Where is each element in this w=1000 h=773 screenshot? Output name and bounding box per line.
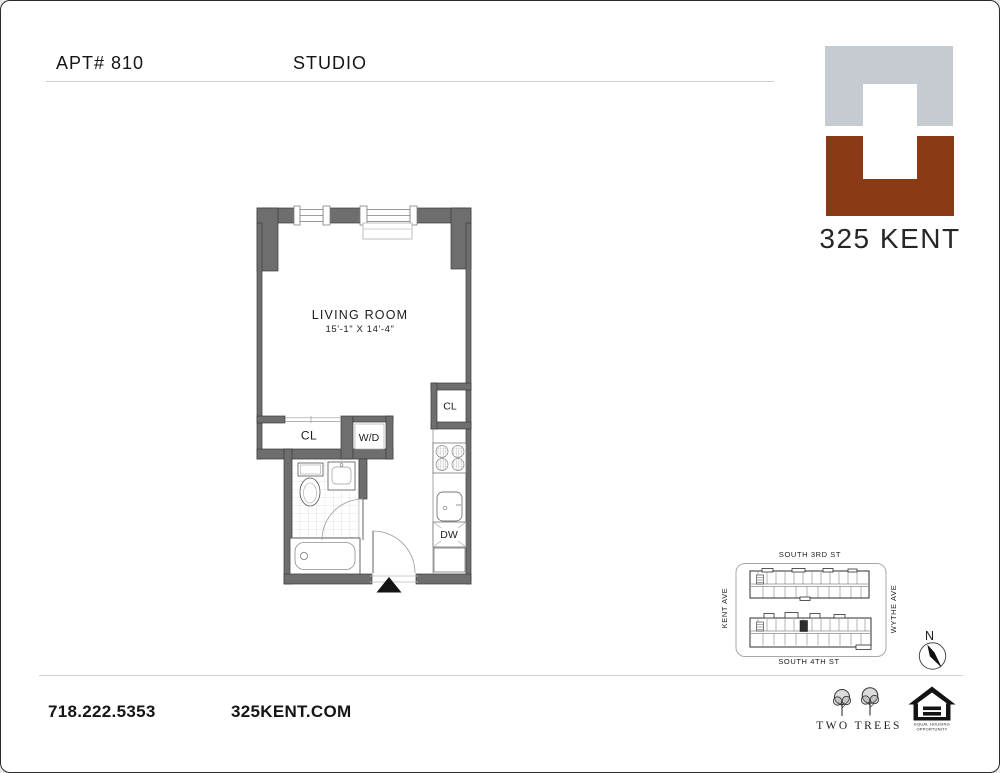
wall-segment xyxy=(341,416,353,459)
phone-number: 718.222.5353 xyxy=(48,702,156,722)
drawing-layer: LIVING ROOM 15'-1" X 14'-4" CL W/D CL DW xyxy=(1,1,1000,773)
kitchen-closet-label: CL xyxy=(443,401,457,413)
dishwasher-label: DW xyxy=(440,529,458,541)
wall-segment xyxy=(431,383,437,429)
south-building-footprint xyxy=(750,613,871,650)
washer-dryer-label: W/D xyxy=(359,432,380,444)
window-jamb xyxy=(410,206,417,225)
footer-divider xyxy=(39,675,963,676)
wall-segment xyxy=(257,223,262,459)
north-label: N xyxy=(925,629,934,643)
closet-door-lines xyxy=(285,416,341,423)
wall-segment xyxy=(386,416,393,459)
tree-icon xyxy=(861,688,878,716)
hvac-unit-icon xyxy=(363,223,412,239)
street-label-bottom: SOUTH 4TH ST xyxy=(778,657,839,666)
closet-label: CL xyxy=(301,429,317,443)
entry-marker-arrow xyxy=(377,577,402,593)
window-jamb xyxy=(360,206,367,225)
wall-segment xyxy=(328,208,363,223)
wall-segment xyxy=(284,574,372,584)
street-label-top: SOUTH 3RD ST xyxy=(779,550,841,559)
north-arrow: N xyxy=(919,629,945,669)
developer-name-label: TWO TREES xyxy=(816,720,902,732)
room-dimensions-label: 15'-1" X 14'-4" xyxy=(325,324,394,335)
stove-icon xyxy=(433,443,466,473)
tree-icon xyxy=(833,690,850,717)
floor-plan: LIVING ROOM 15'-1" X 14'-4" CL W/D CL DW xyxy=(257,206,471,593)
window-jamb xyxy=(323,206,330,225)
equal-housing-logo: EQUAL HOUSING OPPORTUNITY xyxy=(909,687,956,732)
two-trees-logo: TWO TREES xyxy=(816,688,902,732)
wall-segment xyxy=(359,459,367,499)
bathroom-sink-icon xyxy=(328,462,355,490)
website-url: 325KENT.COM xyxy=(231,702,351,722)
wall-segment xyxy=(466,223,471,584)
bathtub-icon xyxy=(290,538,360,574)
street-label-left: KENT AVE xyxy=(720,588,729,629)
wall-segment xyxy=(257,416,285,423)
wall-segment xyxy=(416,574,471,584)
wall-segment xyxy=(257,449,393,459)
north-building-footprint xyxy=(750,569,869,601)
room-name-label: LIVING ROOM xyxy=(312,308,409,322)
entry-door-icon xyxy=(370,531,418,582)
window-jamb xyxy=(294,206,300,225)
floorplan-sheet: APT# 810 STUDIO 325 KENT xyxy=(0,0,1000,773)
unit-810-location-marker xyxy=(800,621,808,632)
eho-label-line2: OPPORTUNITY xyxy=(916,727,947,732)
kitchen-cabinet-icon xyxy=(434,548,465,572)
site-map: SOUTH 3RD ST SOUTH 4TH ST KENT AVE WYTHE… xyxy=(720,550,946,669)
kitchen-sink-icon xyxy=(437,492,462,521)
street-label-right: WYTHE AVE xyxy=(889,585,898,634)
